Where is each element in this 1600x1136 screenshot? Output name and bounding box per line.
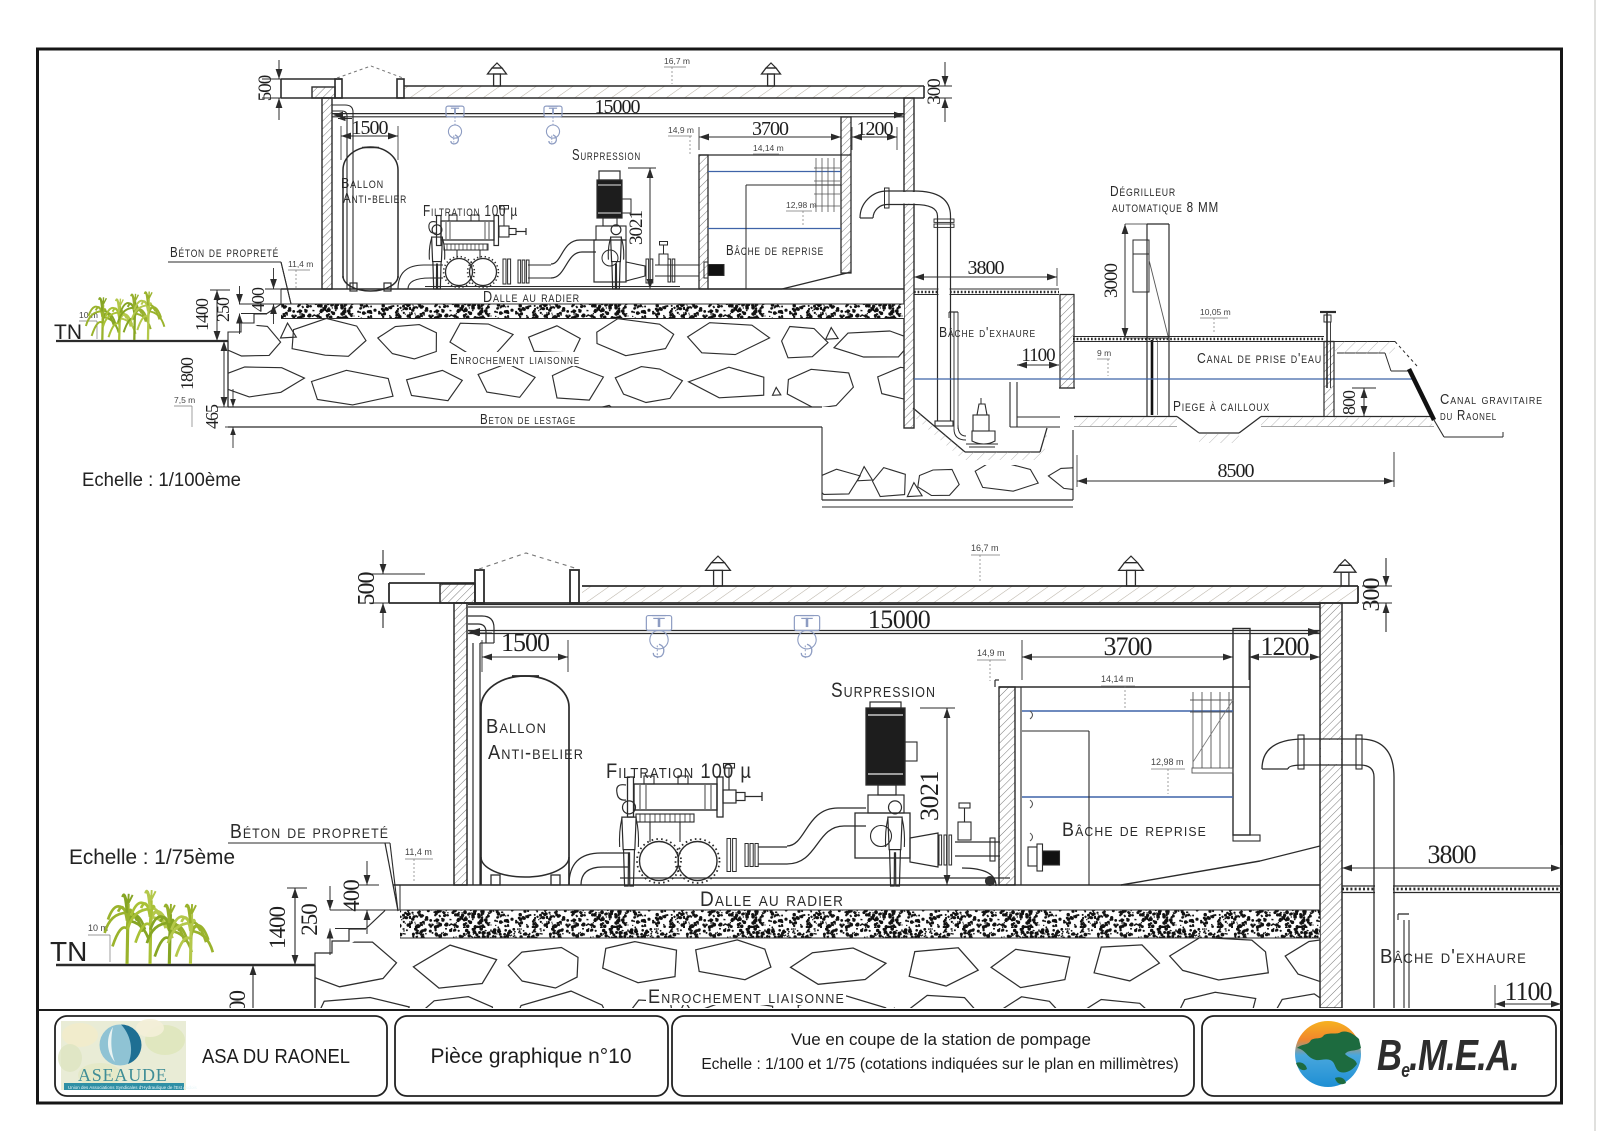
svg-text:TN: TN <box>54 321 82 344</box>
svg-text:Canal gravitaire: Canal gravitaire <box>1440 392 1543 408</box>
svg-text:Anti-belier: Anti-belier <box>488 742 584 764</box>
svg-text:Beton de lestage: Beton de lestage <box>480 412 576 428</box>
svg-text:3800: 3800 <box>1428 840 1477 869</box>
svg-text:1400: 1400 <box>192 298 212 331</box>
svg-text:Dalle au radier: Dalle au radier <box>483 289 580 306</box>
svg-text:Dégrilleur: Dégrilleur <box>1110 183 1176 200</box>
svg-text:du Raonel: du Raonel <box>1440 408 1497 424</box>
svg-text:Béton de propreté: Béton de propreté <box>170 244 279 261</box>
svg-text:1500: 1500 <box>501 628 550 657</box>
svg-text:9 m: 9 m <box>1097 348 1111 358</box>
svg-text:3700: 3700 <box>752 118 789 140</box>
svg-text:Ballon: Ballon <box>486 716 547 738</box>
svg-text:800: 800 <box>1339 390 1359 415</box>
svg-text:Pièce graphique n°10: Pièce graphique n°10 <box>430 1045 631 1068</box>
svg-text:Canal de prise d'eau: Canal de prise d'eau <box>1197 350 1322 367</box>
svg-text:Enrochement liaisonne: Enrochement liaisonne <box>648 987 845 1008</box>
svg-text:1100: 1100 <box>1504 977 1552 1006</box>
svg-text:500: 500 <box>255 75 276 101</box>
svg-text:Béton de propreté: Béton de propreté <box>230 821 389 843</box>
svg-text:Surpression: Surpression <box>572 147 641 164</box>
svg-text:8500: 8500 <box>1218 460 1255 482</box>
svg-text:14,9 m: 14,9 m <box>668 125 694 135</box>
svg-text:500: 500 <box>354 572 380 606</box>
svg-text:300: 300 <box>1359 578 1385 612</box>
svg-text:Vue en coupe de la station de: Vue en coupe de la station de pompage <box>791 1030 1091 1049</box>
svg-text:16,7 m: 16,7 m <box>664 56 690 66</box>
svg-text:3000: 3000 <box>1101 264 1122 299</box>
svg-text:11,4 m: 11,4 m <box>405 847 432 857</box>
svg-text:TN: TN <box>50 936 87 967</box>
svg-text:Piege à cailloux: Piege à cailloux <box>1173 398 1270 415</box>
svg-text:Anti-belier: Anti-belier <box>343 190 407 207</box>
svg-text:1200: 1200 <box>857 118 894 140</box>
svg-text:Be.M.E.A.: Be.M.E.A. <box>1377 1031 1519 1082</box>
svg-text:1100: 1100 <box>1021 345 1055 366</box>
svg-text:Echelle : 1/100ème: Echelle : 1/100ème <box>82 469 241 491</box>
svg-text:automatique 8 MM: automatique 8 MM <box>1112 199 1219 216</box>
svg-text:14,14 m: 14,14 m <box>753 143 784 153</box>
svg-text:Surpression: Surpression <box>831 679 936 702</box>
svg-text:14,14 m: 14,14 m <box>1101 674 1134 684</box>
svg-text:Dalle au radier: Dalle au radier <box>700 888 844 911</box>
svg-text:15000: 15000 <box>595 96 641 118</box>
svg-text:400: 400 <box>248 287 268 312</box>
svg-text:12,98 m: 12,98 m <box>786 200 817 210</box>
svg-text:10,05 m: 10,05 m <box>1200 307 1231 317</box>
svg-text:465: 465 <box>202 404 222 429</box>
svg-text:Echelle : 1/75ème: Echelle : 1/75ème <box>69 846 235 869</box>
svg-text:Echelle : 1/100 et 1/75 (cotat: Echelle : 1/100 et 1/75 (cotations indiq… <box>701 1056 1178 1073</box>
svg-text:3800: 3800 <box>968 257 1005 279</box>
svg-text:1500: 1500 <box>352 117 389 139</box>
svg-text:3021: 3021 <box>915 771 944 821</box>
svg-text:Bâche de reprise: Bâche de reprise <box>1062 820 1207 841</box>
svg-text:3700: 3700 <box>1104 632 1153 661</box>
svg-text:1800: 1800 <box>177 357 197 390</box>
svg-text:15000: 15000 <box>868 605 931 634</box>
svg-text:250: 250 <box>297 904 322 936</box>
svg-text:Bâche d'exhaure: Bâche d'exhaure <box>1380 946 1527 968</box>
svg-text:ASA DU RAONEL: ASA DU RAONEL <box>202 1046 350 1068</box>
svg-text:300: 300 <box>924 79 945 105</box>
svg-text:16,7 m: 16,7 m <box>971 543 999 553</box>
svg-text:ASEAUDE: ASEAUDE <box>78 1065 168 1085</box>
svg-text:Union des Associations Syndica: Union des Associations Syndicales d'Hydr… <box>68 1085 198 1090</box>
svg-text:11,4 m: 11,4 m <box>288 259 313 269</box>
svg-text:Enrochement liaisonne: Enrochement liaisonne <box>450 352 580 368</box>
svg-text:3021: 3021 <box>626 211 647 246</box>
svg-text:12,98 m: 12,98 m <box>1151 757 1184 767</box>
svg-text:1400: 1400 <box>265 907 290 950</box>
svg-text:Bâche de reprise: Bâche de reprise <box>726 242 824 259</box>
svg-text:1200: 1200 <box>1261 632 1310 661</box>
svg-text:400: 400 <box>339 880 364 912</box>
svg-text:7,5 m: 7,5 m <box>174 395 195 405</box>
svg-text:250: 250 <box>213 297 233 322</box>
svg-text:14,9 m: 14,9 m <box>977 648 1005 658</box>
